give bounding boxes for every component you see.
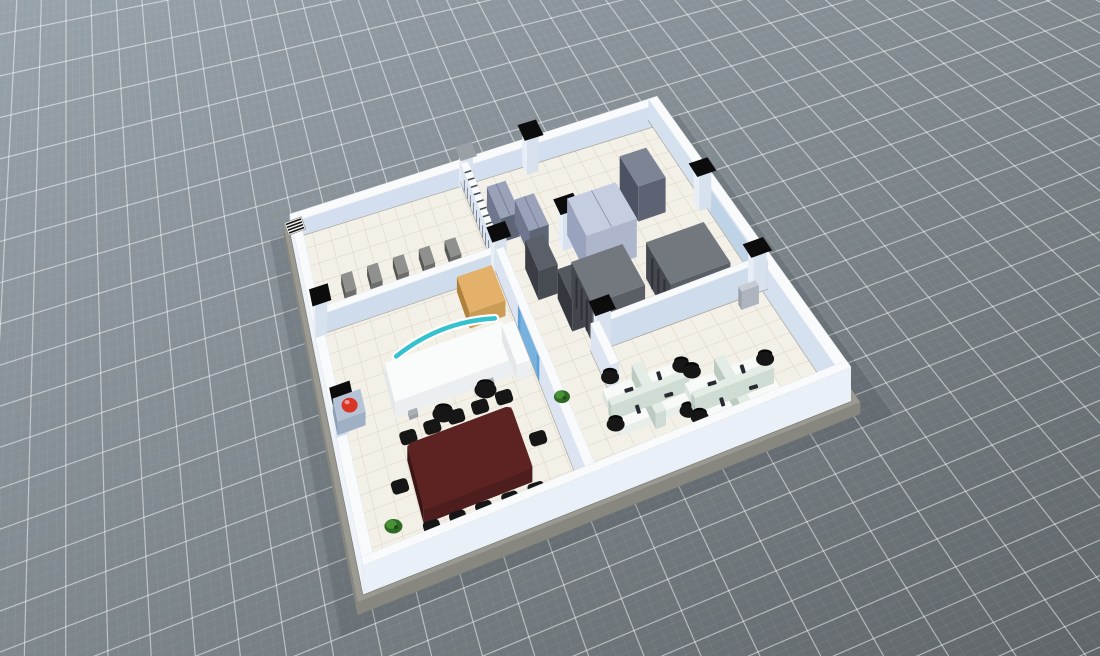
plant-meeting[interactable] xyxy=(384,519,402,533)
reception-chair-2[interactable] xyxy=(474,379,496,398)
red-ball[interactable] xyxy=(342,398,358,413)
3d-viewport[interactable] xyxy=(0,0,1100,656)
floorplan-3d-canvas[interactable] xyxy=(0,0,1100,656)
plant-corridor[interactable] xyxy=(554,390,570,403)
